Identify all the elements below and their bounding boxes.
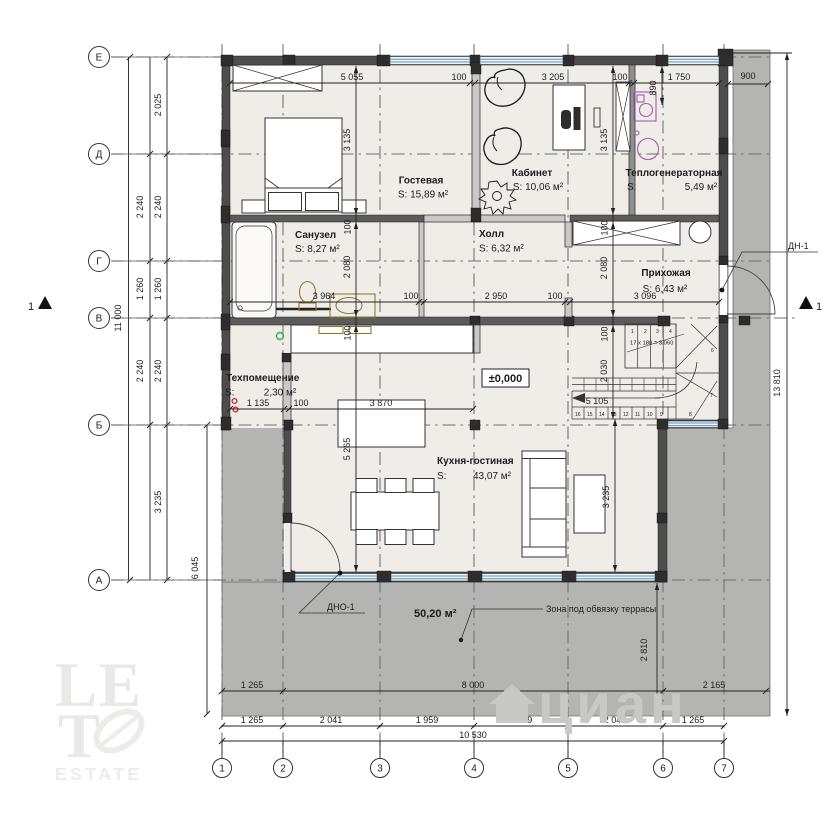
- svg-text:2 950: 2 950: [485, 291, 508, 301]
- svg-text:2 240: 2 240: [153, 360, 163, 383]
- svg-text:1: 1: [816, 301, 822, 313]
- svg-text:100: 100: [451, 72, 466, 82]
- svg-text:100: 100: [403, 291, 418, 301]
- svg-text:1 959: 1 959: [416, 715, 439, 725]
- svg-text:7: 7: [721, 764, 727, 775]
- svg-text:Кабинет: Кабинет: [512, 167, 553, 179]
- svg-text:S:: S:: [627, 182, 636, 193]
- svg-text:±0,000: ±0,000: [489, 373, 523, 385]
- svg-text:100: 100: [612, 72, 627, 82]
- svg-text:S: 10,06 м²: S: 10,06 м²: [513, 182, 564, 193]
- svg-text:S:: S:: [225, 388, 234, 399]
- svg-text:1 260: 1 260: [153, 278, 163, 301]
- svg-text:43,07 м²: 43,07 м²: [473, 471, 512, 482]
- svg-text:6: 6: [660, 764, 666, 775]
- svg-text:2 240: 2 240: [135, 360, 145, 383]
- svg-text:3: 3: [377, 764, 383, 775]
- svg-text:7: 7: [710, 393, 713, 399]
- svg-text:S: 6,32 м²: S: 6,32 м²: [479, 244, 524, 255]
- svg-text:ДН-1: ДН-1: [788, 241, 809, 251]
- svg-text:100: 100: [600, 220, 610, 235]
- svg-text:4: 4: [669, 329, 672, 335]
- svg-text:1 750: 1 750: [668, 72, 691, 82]
- svg-text:5 055: 5 055: [341, 72, 364, 82]
- svg-text:4: 4: [471, 764, 477, 775]
- svg-text:3 870: 3 870: [370, 398, 393, 408]
- svg-text:1 135: 1 135: [247, 398, 270, 408]
- svg-text:1: 1: [28, 301, 34, 313]
- svg-text:2 041: 2 041: [320, 715, 343, 725]
- svg-text:2 080: 2 080: [599, 257, 609, 280]
- svg-text:10 530: 10 530: [459, 730, 487, 740]
- svg-text:Техпомещение: Техпомещение: [226, 373, 300, 384]
- svg-text:3 135: 3 135: [342, 129, 352, 152]
- svg-text:100: 100: [293, 398, 308, 408]
- svg-text:15: 15: [587, 412, 593, 418]
- svg-text:Д: Д: [96, 150, 103, 161]
- svg-text:В: В: [96, 314, 103, 325]
- svg-text:1: 1: [219, 764, 225, 775]
- svg-text:2 240: 2 240: [153, 196, 163, 219]
- svg-text:Г: Г: [96, 257, 102, 268]
- svg-text:2 810: 2 810: [639, 639, 649, 662]
- svg-text:Гостевая: Гостевая: [399, 176, 444, 187]
- svg-text:2 080: 2 080: [342, 256, 352, 279]
- svg-text:100: 100: [600, 326, 610, 341]
- svg-text:2 025: 2 025: [153, 94, 163, 117]
- svg-text:100: 100: [547, 291, 562, 301]
- svg-text:50,20 м²: 50,20 м²: [414, 608, 457, 620]
- svg-text:1 265: 1 265: [241, 715, 264, 725]
- svg-text:14: 14: [599, 412, 605, 418]
- svg-text:ДНО-1: ДНО-1: [327, 602, 355, 612]
- svg-text:S: 15,89 м²: S: 15,89 м²: [398, 190, 449, 201]
- svg-text:3 235: 3 235: [153, 491, 163, 514]
- svg-text:А: А: [96, 576, 103, 587]
- svg-text:1: 1: [631, 329, 634, 335]
- svg-text:ESTATE: ESTATE: [55, 764, 142, 784]
- svg-text:16: 16: [575, 412, 581, 418]
- svg-text:Кухня-гостиная: Кухня-гостиная: [437, 456, 514, 467]
- svg-text:100: 100: [343, 325, 353, 340]
- svg-text:5,49 м²: 5,49 м²: [685, 182, 718, 193]
- svg-text:2 240: 2 240: [135, 196, 145, 219]
- svg-text:17 x 180 = 3 060: 17 x 180 = 3 060: [630, 341, 673, 347]
- svg-text:5 265: 5 265: [342, 438, 352, 461]
- svg-text:12: 12: [623, 412, 629, 418]
- svg-text:Холл: Холл: [479, 229, 504, 240]
- svg-text:S:: S:: [437, 471, 446, 482]
- svg-text:5: 5: [565, 764, 571, 775]
- svg-text:13 810: 13 810: [772, 369, 782, 397]
- svg-text:890: 890: [648, 80, 658, 95]
- svg-text:5 105: 5 105: [586, 396, 609, 406]
- svg-text:2: 2: [644, 329, 647, 335]
- svg-text:1 265: 1 265: [241, 680, 264, 690]
- svg-text:Санузел: Санузел: [295, 230, 336, 241]
- svg-text:3 235: 3 235: [601, 486, 611, 509]
- svg-text:900: 900: [740, 71, 755, 81]
- svg-text:8: 8: [689, 412, 692, 418]
- svg-text:3 205: 3 205: [542, 72, 565, 82]
- svg-text:6 045: 6 045: [190, 557, 200, 580]
- svg-text:Б: Б: [96, 421, 103, 432]
- svg-text:S: 6,43 м²: S: 6,43 м²: [643, 284, 688, 295]
- svg-text:2: 2: [280, 764, 286, 775]
- svg-text:9: 9: [660, 412, 663, 418]
- svg-text:Зона под обвязку террасы: Зона под обвязку террасы: [546, 604, 656, 614]
- svg-text:8 000: 8 000: [462, 680, 485, 690]
- svg-text:2 165: 2 165: [703, 680, 726, 690]
- svg-text:1 260: 1 260: [135, 278, 145, 301]
- svg-text:3 964: 3 964: [313, 291, 336, 301]
- svg-text:6: 6: [711, 348, 714, 354]
- svg-text:циан: циан: [538, 672, 688, 735]
- svg-text:10: 10: [647, 412, 653, 418]
- svg-text:S: 8,27 м²: S: 8,27 м²: [295, 244, 340, 255]
- svg-text:11: 11: [635, 412, 640, 418]
- svg-text:Е: Е: [96, 53, 103, 64]
- svg-text:Прихожая: Прихожая: [641, 268, 691, 279]
- svg-text:Теплогенераторная: Теплогенераторная: [626, 168, 723, 179]
- svg-text:2,30 м²: 2,30 м²: [264, 388, 297, 399]
- svg-text:3: 3: [656, 329, 659, 335]
- svg-text:3 135: 3 135: [599, 129, 609, 152]
- svg-text:100: 100: [343, 219, 353, 234]
- svg-text:2 030: 2 030: [599, 360, 609, 383]
